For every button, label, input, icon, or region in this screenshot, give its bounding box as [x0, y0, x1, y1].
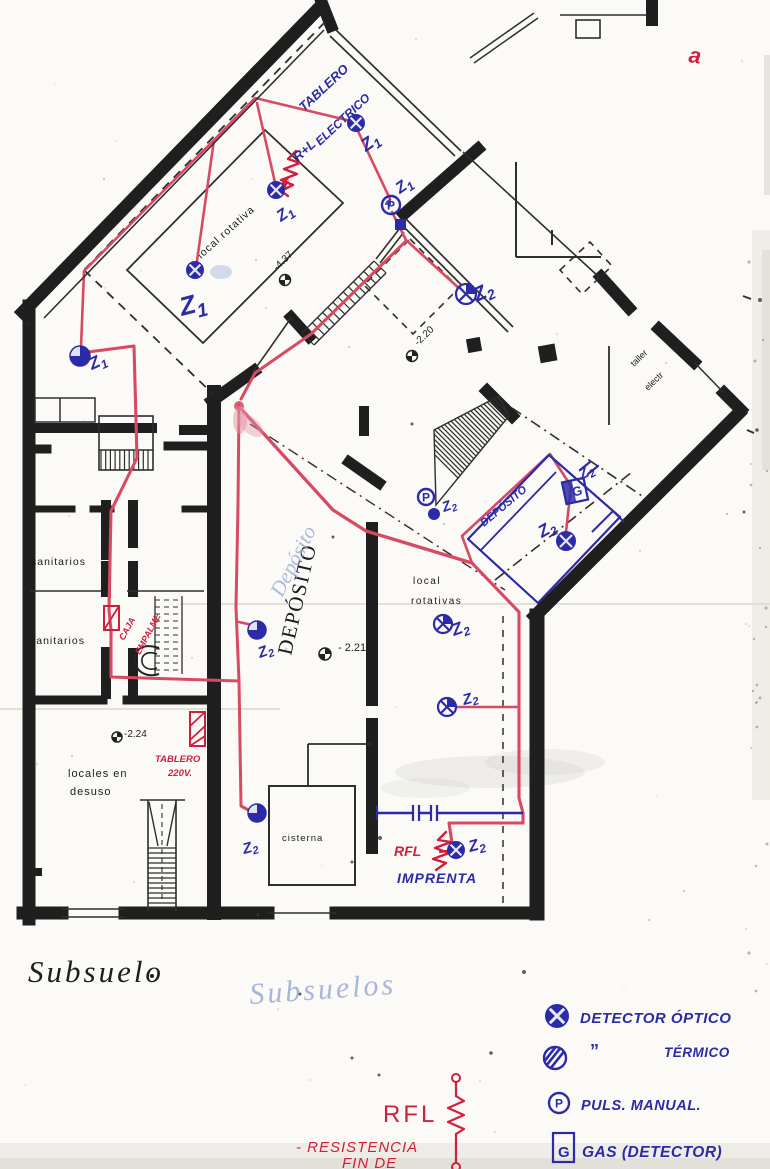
svg-text:”: ”: [590, 1041, 599, 1061]
svg-text:RFL: RFL: [383, 1101, 437, 1128]
svg-text:FIN DE: FIN DE: [342, 1155, 397, 1169]
svg-text:GAS (DETECTOR): GAS (DETECTOR): [582, 1144, 722, 1161]
svg-text:cisterna: cisterna: [282, 833, 323, 844]
svg-text:220V.: 220V.: [167, 768, 192, 779]
svg-text:sanitarios: sanitarios: [30, 635, 85, 647]
svg-text:rotativas: rotativas: [411, 596, 462, 607]
svg-text:desuso: desuso: [70, 786, 111, 798]
svg-text:P: P: [422, 491, 430, 505]
svg-text:- RESISTENCIA: - RESISTENCIA: [296, 1139, 418, 1156]
svg-text:G: G: [558, 1144, 570, 1161]
svg-text:P: P: [555, 1097, 563, 1111]
svg-text:DETECTOR ÓPTICO: DETECTOR ÓPTICO: [580, 1009, 731, 1027]
svg-text:RFL: RFL: [394, 843, 421, 859]
svg-text:local: local: [413, 576, 441, 587]
svg-text:-2.24: -2.24: [124, 729, 147, 740]
svg-text:PULS. MANUAL.: PULS. MANUAL.: [581, 1098, 701, 1114]
svg-text:sanitarios: sanitarios: [31, 556, 86, 568]
svg-text:TÉRMICO: TÉRMICO: [664, 1045, 730, 1060]
svg-text:- 2.21: - 2.21: [338, 642, 366, 654]
svg-text:TABLERO: TABLERO: [155, 754, 201, 765]
svg-text:IMPRENTA: IMPRENTA: [397, 870, 477, 886]
svg-text:locales en: locales en: [68, 768, 128, 780]
svg-text:Subsuelo: Subsuelo: [28, 954, 164, 989]
